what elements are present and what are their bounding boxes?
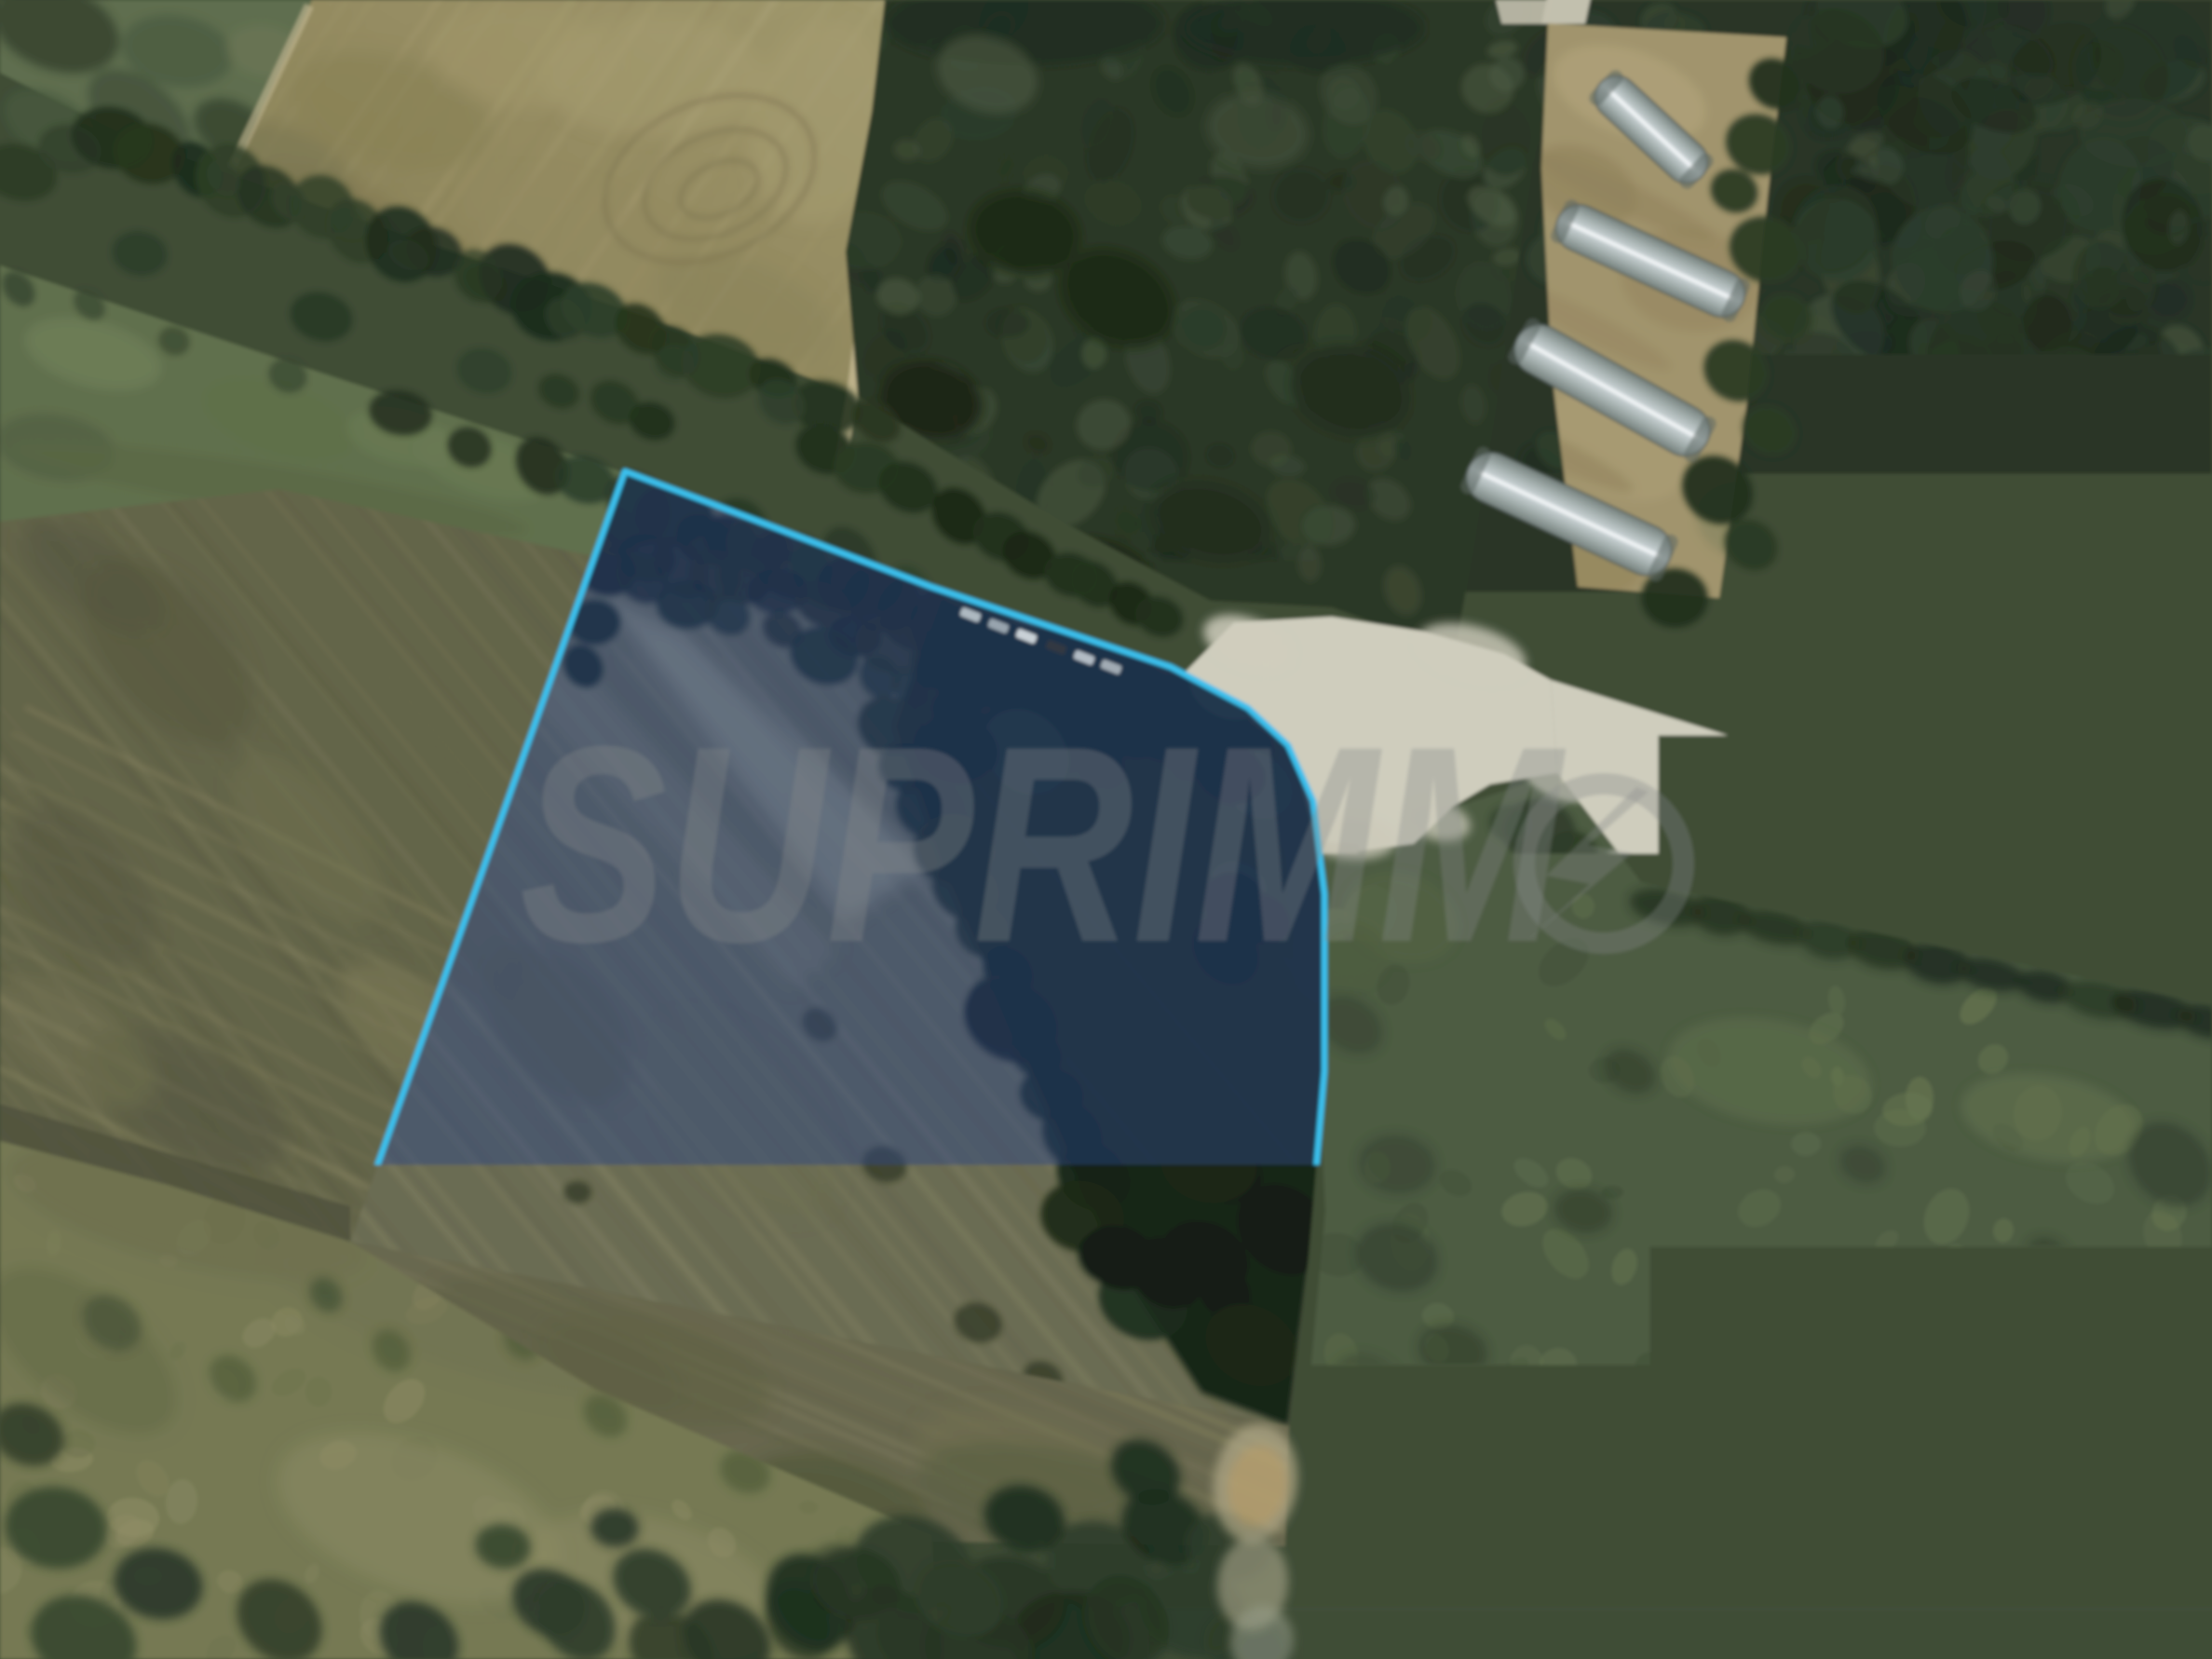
svg-text:SUPRIMM: SUPRIMM — [520, 688, 1567, 1000]
